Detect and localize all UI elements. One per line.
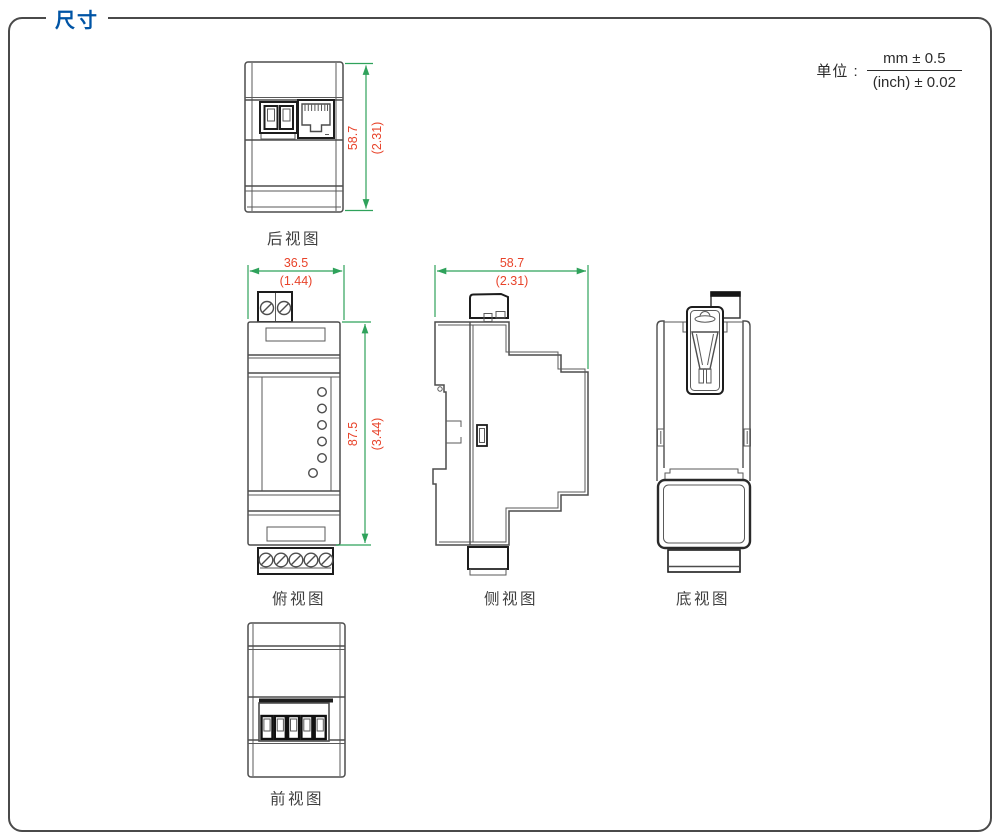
din-rail-clip (687, 307, 723, 394)
dimension-drawing-page: 尺寸 单位 : mm ± 0.5 (inch) ± 0.02 (0, 0, 1000, 840)
side-terminal-bottom (468, 547, 508, 575)
top-view-drawing: 36.5 (1.44) 87.5 (3.44) 俯视图 (248, 256, 384, 608)
din-clip-slot (477, 425, 487, 446)
side-view-label: 侧视图 (484, 590, 538, 608)
top-length-mm: 87.5 (346, 422, 360, 446)
power-terminal-2p (260, 102, 297, 139)
side-depth-inch: (2.31) (496, 274, 529, 288)
top-width-inch: (1.44) (280, 274, 313, 288)
side-body-profile (433, 322, 588, 545)
rj45-port (298, 100, 334, 138)
front-view-label: 前视图 (270, 790, 324, 808)
rear-height-dimension: 58.7 (2.31) (345, 64, 384, 211)
top-length-inch: (3.44) (370, 418, 384, 451)
top-view-label: 俯视图 (272, 590, 326, 608)
front-terminal-5p (259, 701, 333, 742)
bottom-terminal-silhouette (668, 550, 740, 572)
side-depth-mm: 58.7 (500, 256, 524, 270)
bottom-view-drawing: 底视图 (657, 291, 751, 608)
top-terminal-2p (258, 292, 292, 322)
rear-height-mm: 58.7 (346, 126, 360, 150)
rear-view-label: 后视图 (267, 230, 321, 248)
bottom-view-label: 底视图 (676, 590, 730, 608)
bottom-left-wall (657, 321, 664, 481)
views-drawing: 58.7 (2.31) 后视图 (0, 0, 1000, 840)
side-view-drawing: 58.7 (2.31) 侧视图 (433, 256, 588, 608)
top-terminal-5p (258, 548, 333, 574)
top-length-dimension: 87.5 (3.44) (336, 322, 384, 545)
front-view-drawing: 前视图 (248, 623, 345, 808)
bottom-label-tab (665, 469, 743, 480)
rear-height-inch: (2.31) (370, 122, 384, 155)
bottom-right-wall (743, 321, 750, 481)
side-terminal-top (470, 294, 508, 318)
top-width-mm: 36.5 (284, 256, 308, 270)
bottom-label-area (658, 480, 750, 548)
rear-view-drawing: 58.7 (2.31) 后视图 (245, 62, 384, 248)
